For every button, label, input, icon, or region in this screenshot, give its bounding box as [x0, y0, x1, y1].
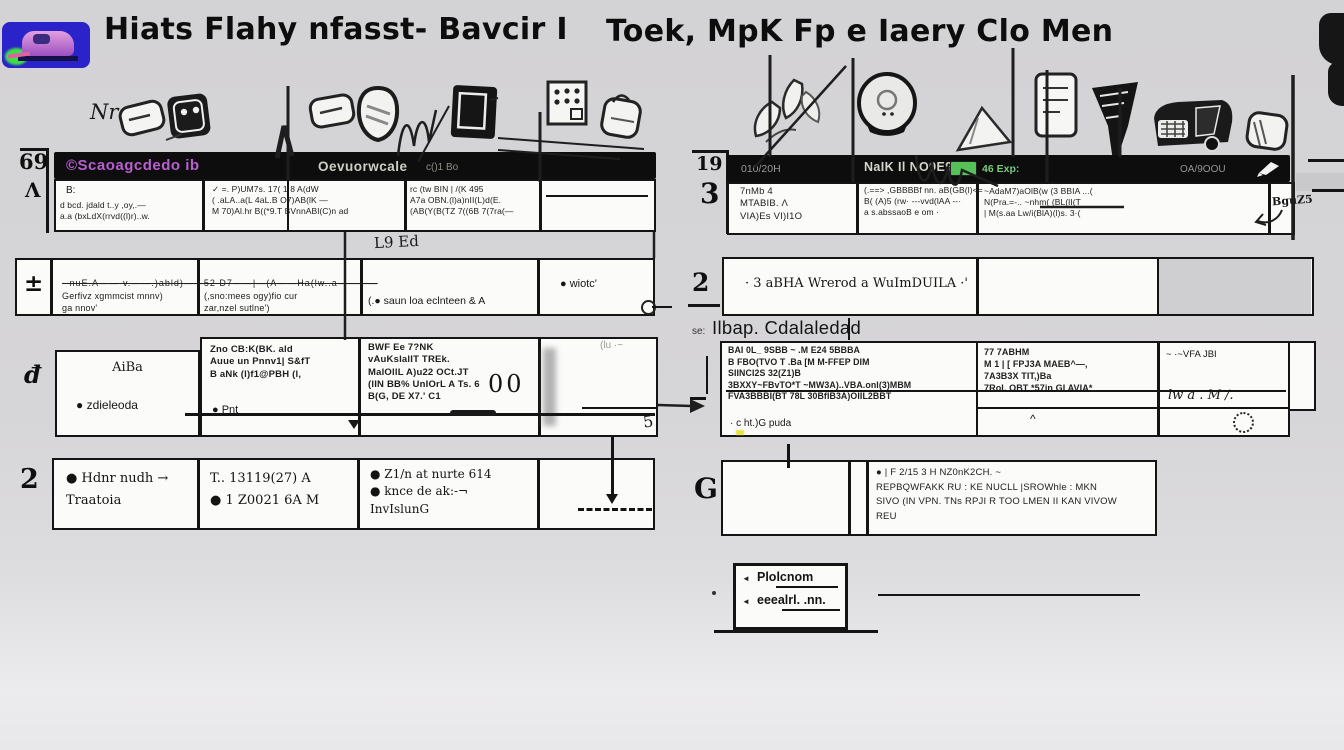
sketch-strokes-layer — [0, 0, 1344, 750]
document-page: Hiats Flahy nfasst- Bavcir I Toek, MpK F… — [0, 0, 1344, 750]
